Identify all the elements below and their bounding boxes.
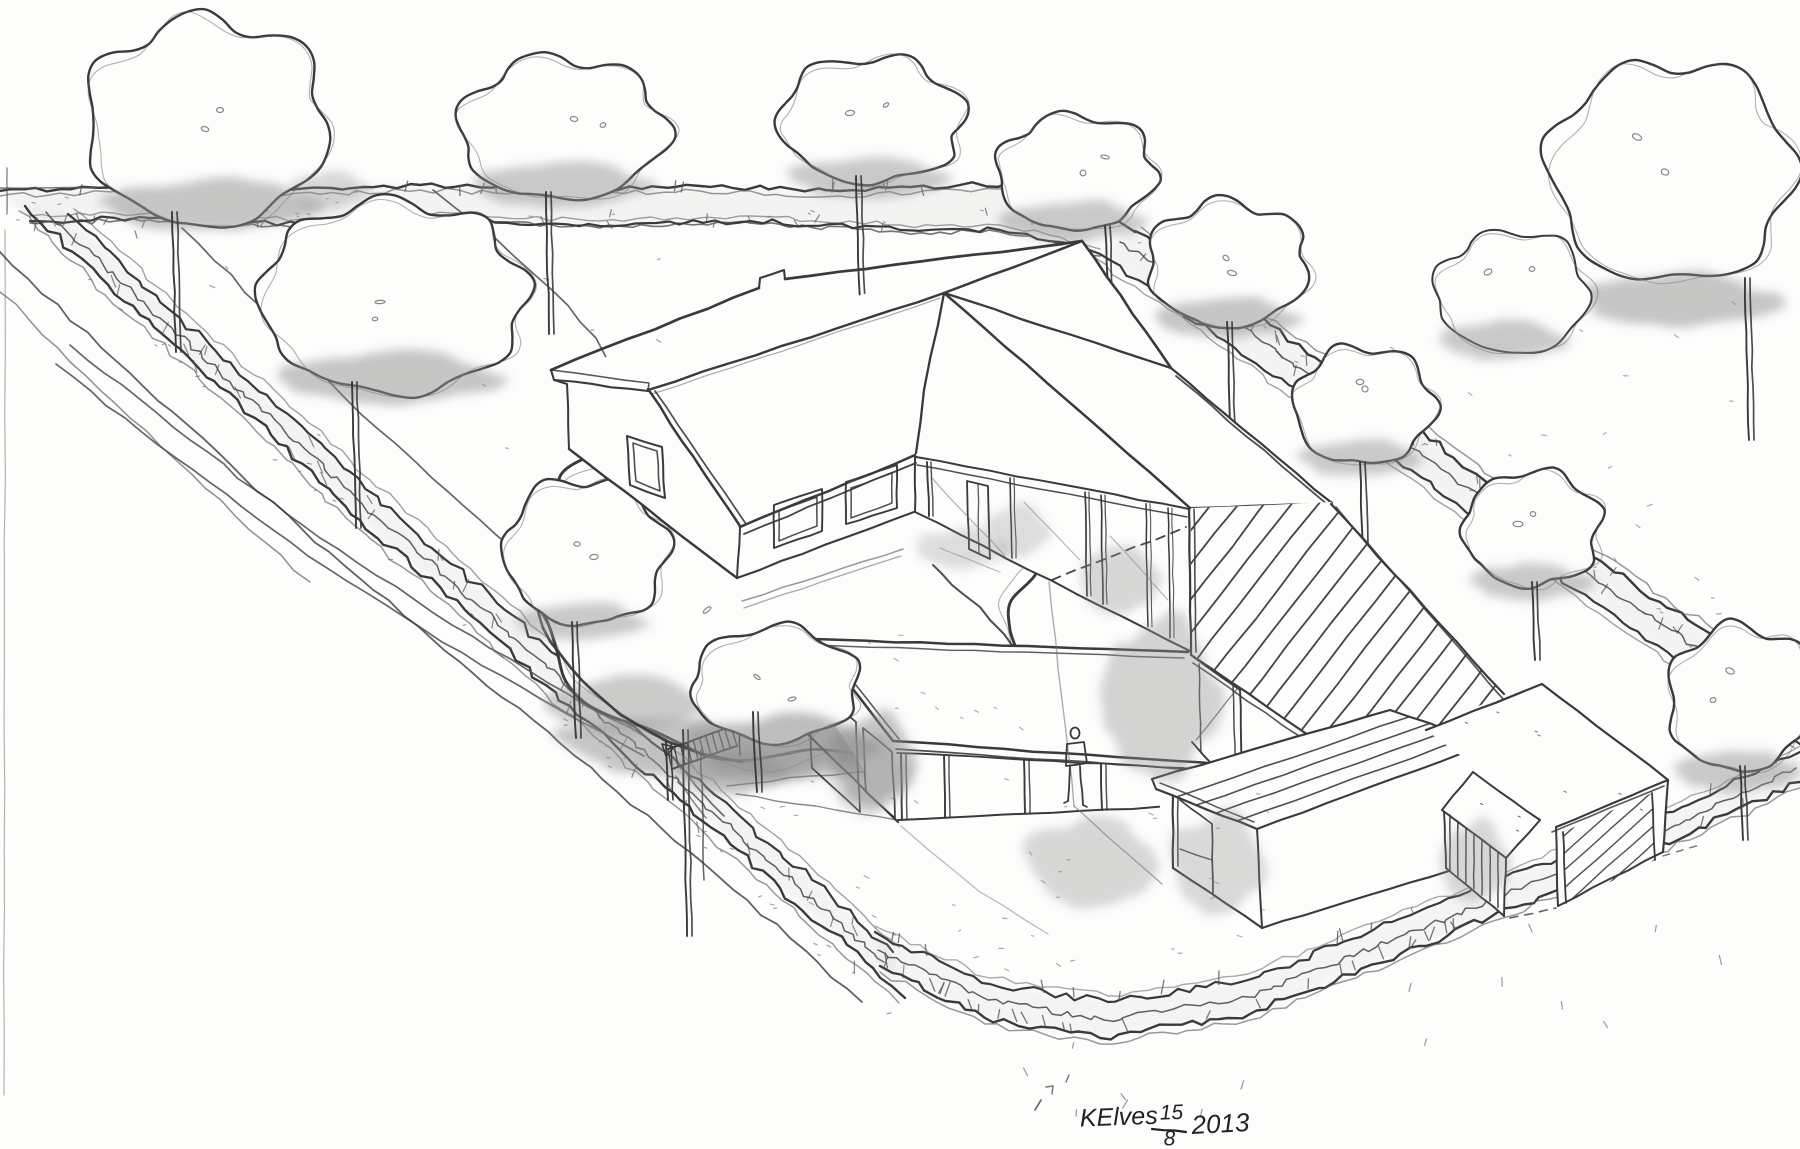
svg-text:2013: 2013 — [1190, 1107, 1251, 1140]
svg-text:KElves: KElves — [1079, 1102, 1158, 1133]
svg-text:15: 15 — [1159, 1101, 1183, 1125]
